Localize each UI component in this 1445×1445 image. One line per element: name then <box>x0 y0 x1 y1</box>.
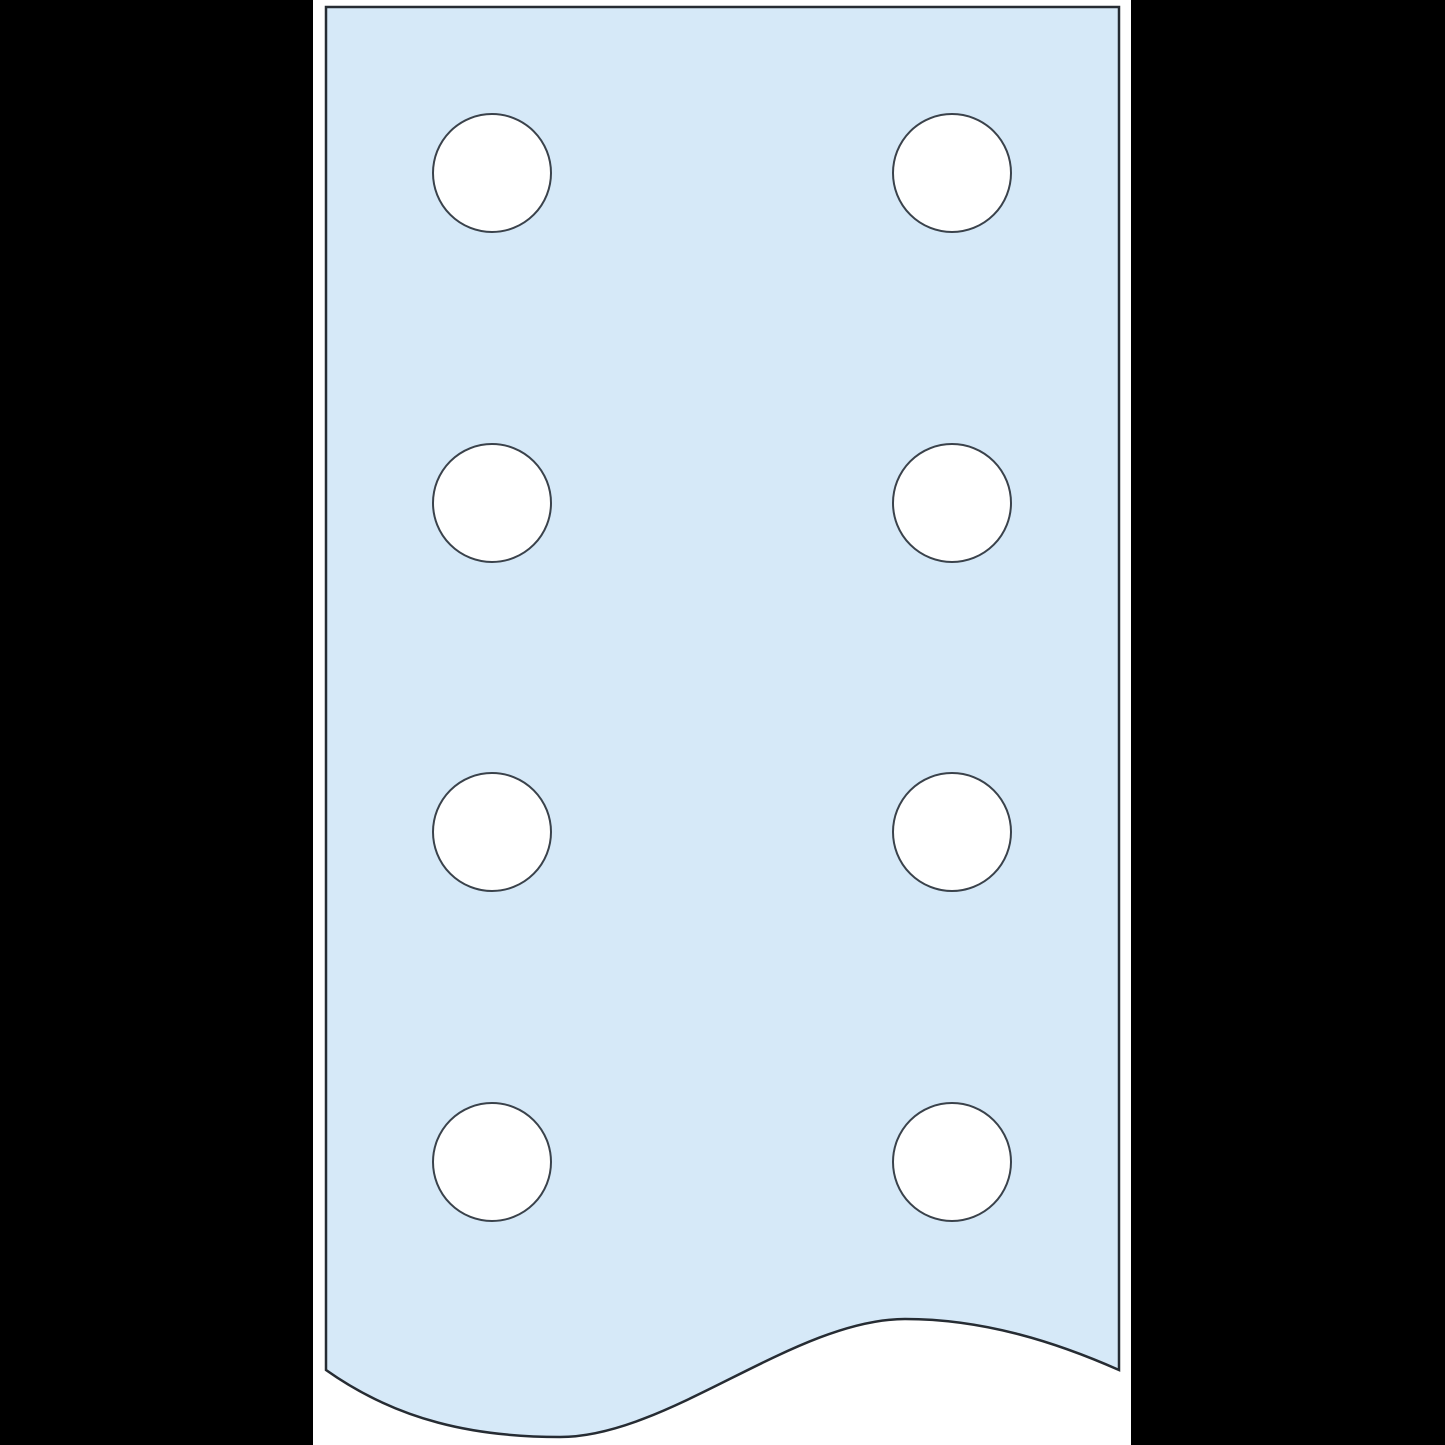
hole <box>433 773 551 891</box>
plate-figure <box>0 0 1445 1445</box>
hole <box>433 1103 551 1221</box>
hole <box>893 444 1011 562</box>
hole <box>893 773 1011 891</box>
hole <box>893 114 1011 232</box>
illustration-stage <box>0 0 1445 1445</box>
hole <box>433 444 551 562</box>
hole <box>893 1103 1011 1221</box>
hole <box>433 114 551 232</box>
plate-shape <box>326 7 1119 1437</box>
